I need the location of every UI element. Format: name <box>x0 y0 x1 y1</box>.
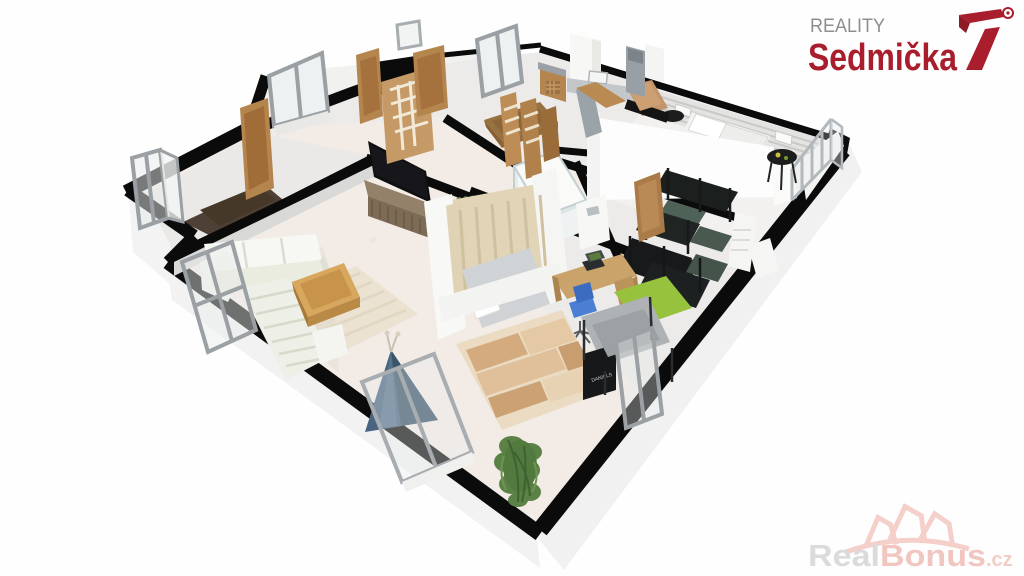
svg-text:.cz: .cz <box>986 549 1013 571</box>
svg-text:Sedmička: Sedmička <box>808 37 958 79</box>
svg-text:RealBonus: RealBonus <box>808 538 986 573</box>
svg-text:REALITY: REALITY <box>810 16 885 37</box>
